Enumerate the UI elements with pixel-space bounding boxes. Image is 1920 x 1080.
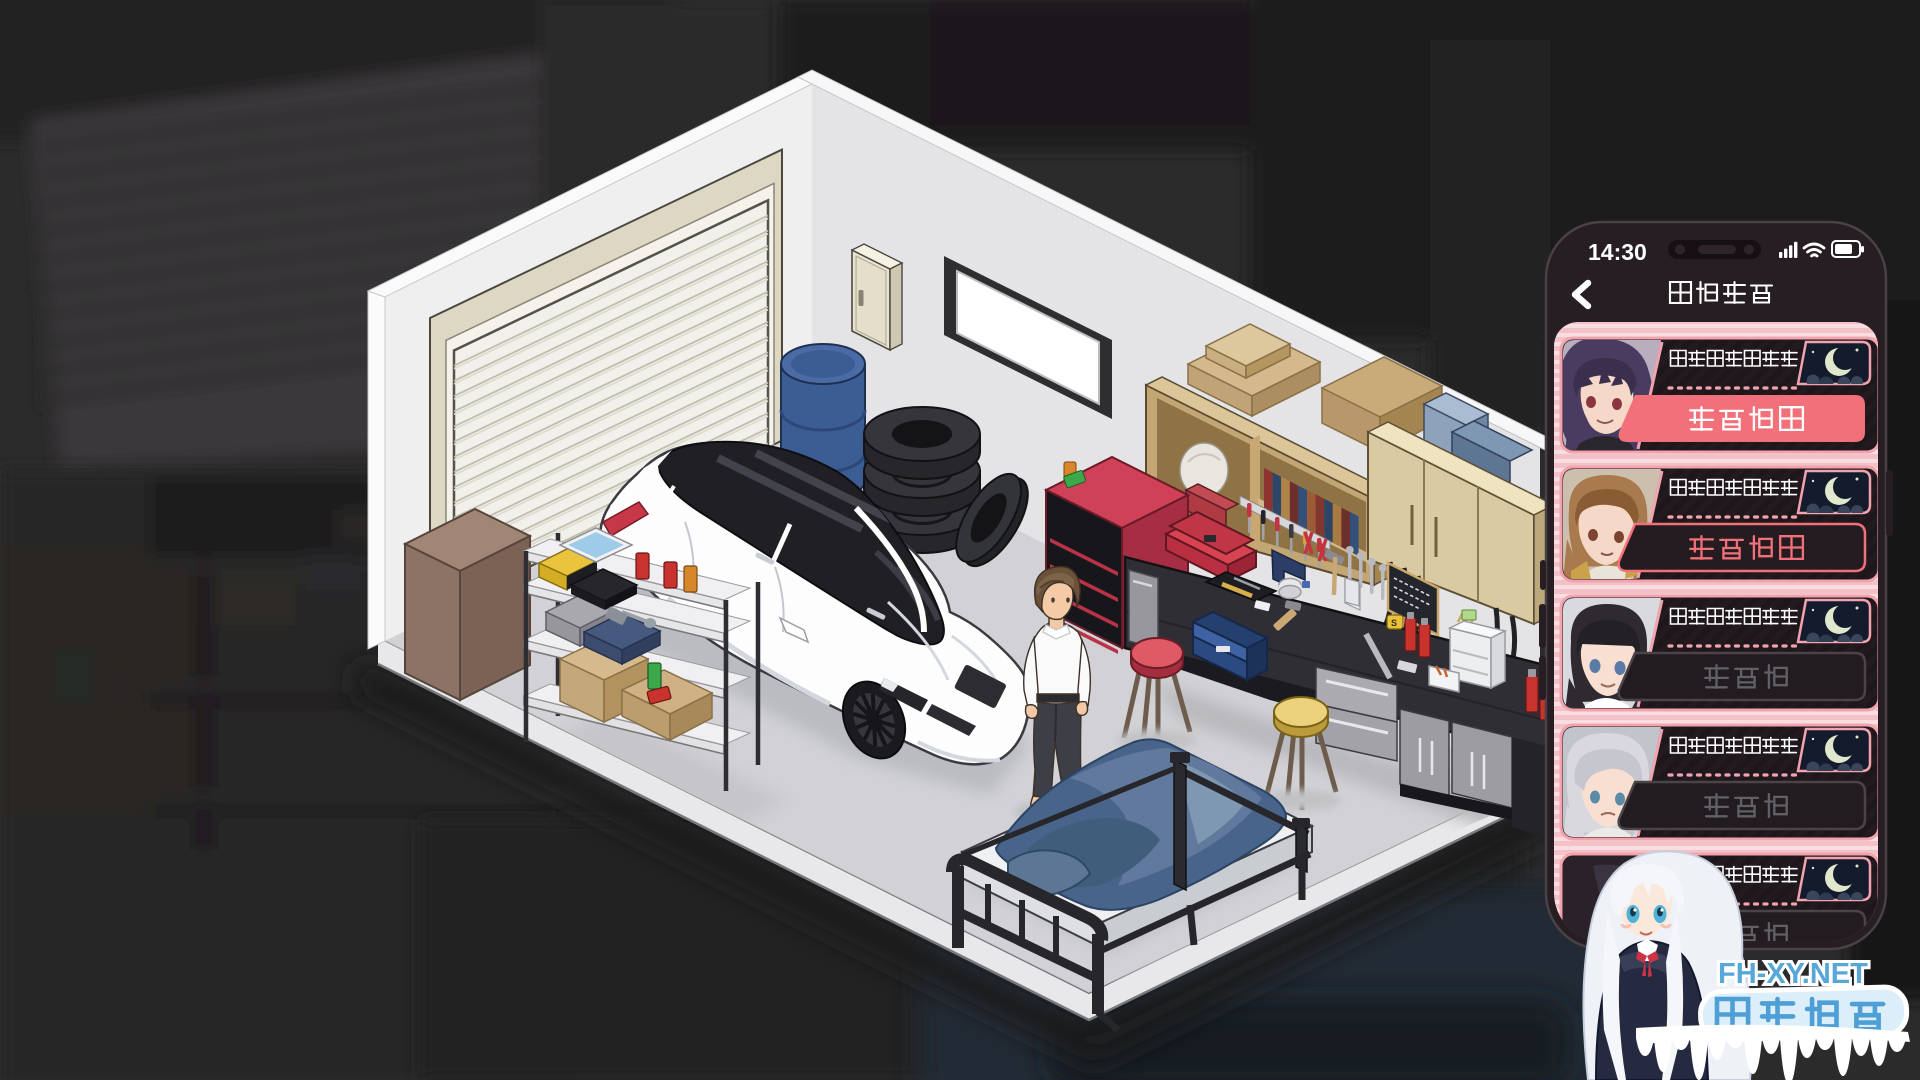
- svg-text:S: S: [1391, 618, 1397, 628]
- svg-text:14:30: 14:30: [1588, 239, 1647, 265]
- svg-text:FH-XY.NET: FH-XY.NET: [1718, 958, 1868, 990]
